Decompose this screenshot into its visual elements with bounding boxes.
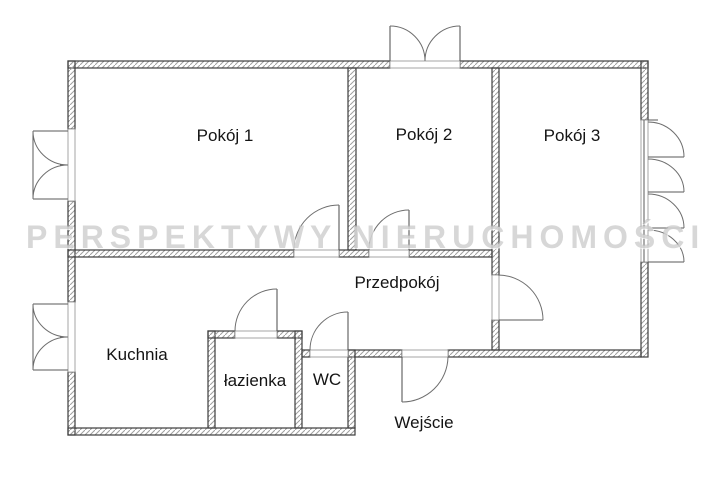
left-wall-lower-segment (68, 372, 75, 435)
pokoj3-door-icon (498, 275, 543, 320)
room-label-pokoj3: Pokój 3 (544, 126, 601, 146)
room-label-pokoj1: Pokój 1 (197, 126, 254, 146)
pokoj3-door-opening (492, 275, 499, 320)
pokoj1-window-opening (68, 129, 75, 201)
entrance-label: Wejście (394, 413, 453, 433)
lazienka-right-wall (295, 331, 302, 428)
wall-openings (68, 61, 648, 372)
wc-right-wall (348, 350, 355, 428)
bottom-wall-hall-right-segment (448, 350, 641, 357)
wc-top-wall-stub (302, 350, 310, 357)
floor-plan-canvas: PERSPEKTYWY NIERUCHOMOŚCI Pokój 1 Pokój … (0, 0, 710, 480)
lazienka-top-wall-left (208, 331, 235, 338)
room-label-wc: WC (313, 370, 341, 390)
room-label-lazienka: łazienka (224, 371, 286, 391)
agency-watermark: PERSPEKTYWY NIERUCHOMOŚCI (26, 220, 705, 254)
top-wall-left-segment (68, 61, 390, 68)
balcony-double-door-icon (390, 26, 460, 61)
balcony-door-opening (390, 61, 460, 68)
room-label-przedpokoj: Przedpokój (354, 273, 439, 293)
pokoj1-window-icon (33, 131, 68, 199)
lazienka-door-opening (235, 331, 277, 338)
kuchnia-window-opening (68, 302, 75, 372)
entrance-door-opening (402, 350, 448, 357)
entrance-door-icon (402, 357, 448, 402)
bottom-wall-kitchen-segment (68, 428, 355, 435)
lazienka-door-icon (235, 289, 277, 331)
right-wall-upper-segment (641, 61, 648, 120)
bottom-wall-hall-left-segment (348, 350, 402, 357)
room-label-pokoj2: Pokój 2 (396, 125, 453, 145)
divider-pokoj3-lower (492, 320, 499, 350)
left-wall-upper-segment (68, 61, 75, 129)
kuchnia-window-icon (33, 304, 68, 370)
wc-door-opening (310, 350, 348, 357)
right-wall-lower-segment (641, 262, 648, 357)
wc-door-icon (310, 312, 348, 350)
top-wall-right-segment (460, 61, 648, 68)
room-label-kuchnia: Kuchnia (106, 345, 167, 365)
lazienka-left-wall (208, 331, 215, 428)
